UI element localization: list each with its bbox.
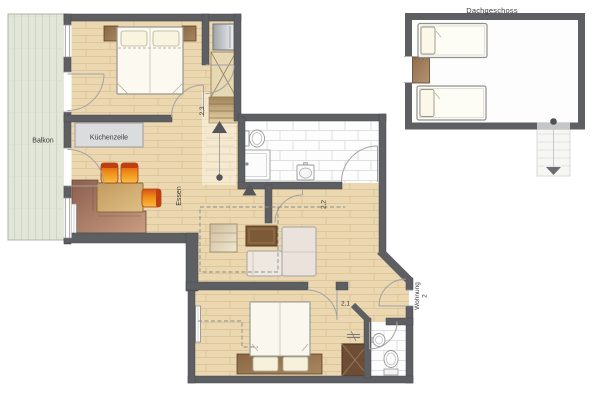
- attic-door-gap: [404, 56, 413, 83]
- attic-cabinet: [413, 57, 430, 83]
- pillow: [283, 357, 308, 371]
- balcony-deck: [8, 14, 66, 240]
- nightstand: [182, 26, 196, 41]
- room-number-hall: 2,3: [199, 106, 206, 115]
- stairs-start-dot: [216, 174, 222, 180]
- staircase-upper-steps: [209, 97, 236, 123]
- single-bed: [417, 86, 486, 120]
- toilet: [384, 351, 398, 376]
- entrance-label-number: 2: [422, 294, 429, 298]
- dining-label: Essen: [176, 186, 183, 206]
- dining-table: [97, 183, 143, 212]
- coffee-table: [246, 226, 277, 246]
- window: [64, 25, 72, 57]
- floor-plan: Balkon Küchenzeile Essen 2,3 2,2 2,1 Woh…: [0, 0, 600, 400]
- balcony-door-opening: [64, 72, 72, 112]
- balcony-label: Balkon: [32, 138, 54, 145]
- drawer-chest: [210, 224, 237, 252]
- dining-chair: [142, 189, 161, 207]
- balcony-door-opening: [64, 148, 72, 186]
- pillow: [153, 31, 179, 46]
- room-number-bottom: 2,1: [341, 301, 350, 308]
- single-bed: [418, 24, 487, 58]
- sink: [297, 163, 314, 181]
- toilet: [244, 130, 265, 147]
- window: [64, 198, 72, 238]
- nightstand: [104, 26, 118, 41]
- room-number-middle: 2,2: [321, 200, 328, 209]
- balcony: [8, 14, 66, 240]
- pillow: [421, 27, 435, 54]
- fridge: [213, 24, 234, 50]
- attic-label: Dachgeschoss: [466, 6, 518, 15]
- radiator: [196, 306, 201, 342]
- attic-room: [404, 17, 582, 177]
- kitchenette-label: Küchenzeile: [90, 135, 128, 142]
- entrance-label: Wohnung: [414, 282, 421, 310]
- stairs-start-dot: [550, 118, 557, 125]
- pillow: [420, 90, 434, 117]
- dining-chair: [121, 163, 138, 183]
- floor-plan-page: Balkon Küchenzeile Essen 2,3 2,2 2,1 Woh…: [0, 0, 600, 400]
- pillow: [121, 31, 147, 46]
- bed-frame: [237, 354, 322, 374]
- pillow: [253, 357, 278, 371]
- double-bed: [117, 27, 183, 94]
- double-bed: [237, 302, 322, 374]
- shower-drain-icon: [245, 162, 248, 165]
